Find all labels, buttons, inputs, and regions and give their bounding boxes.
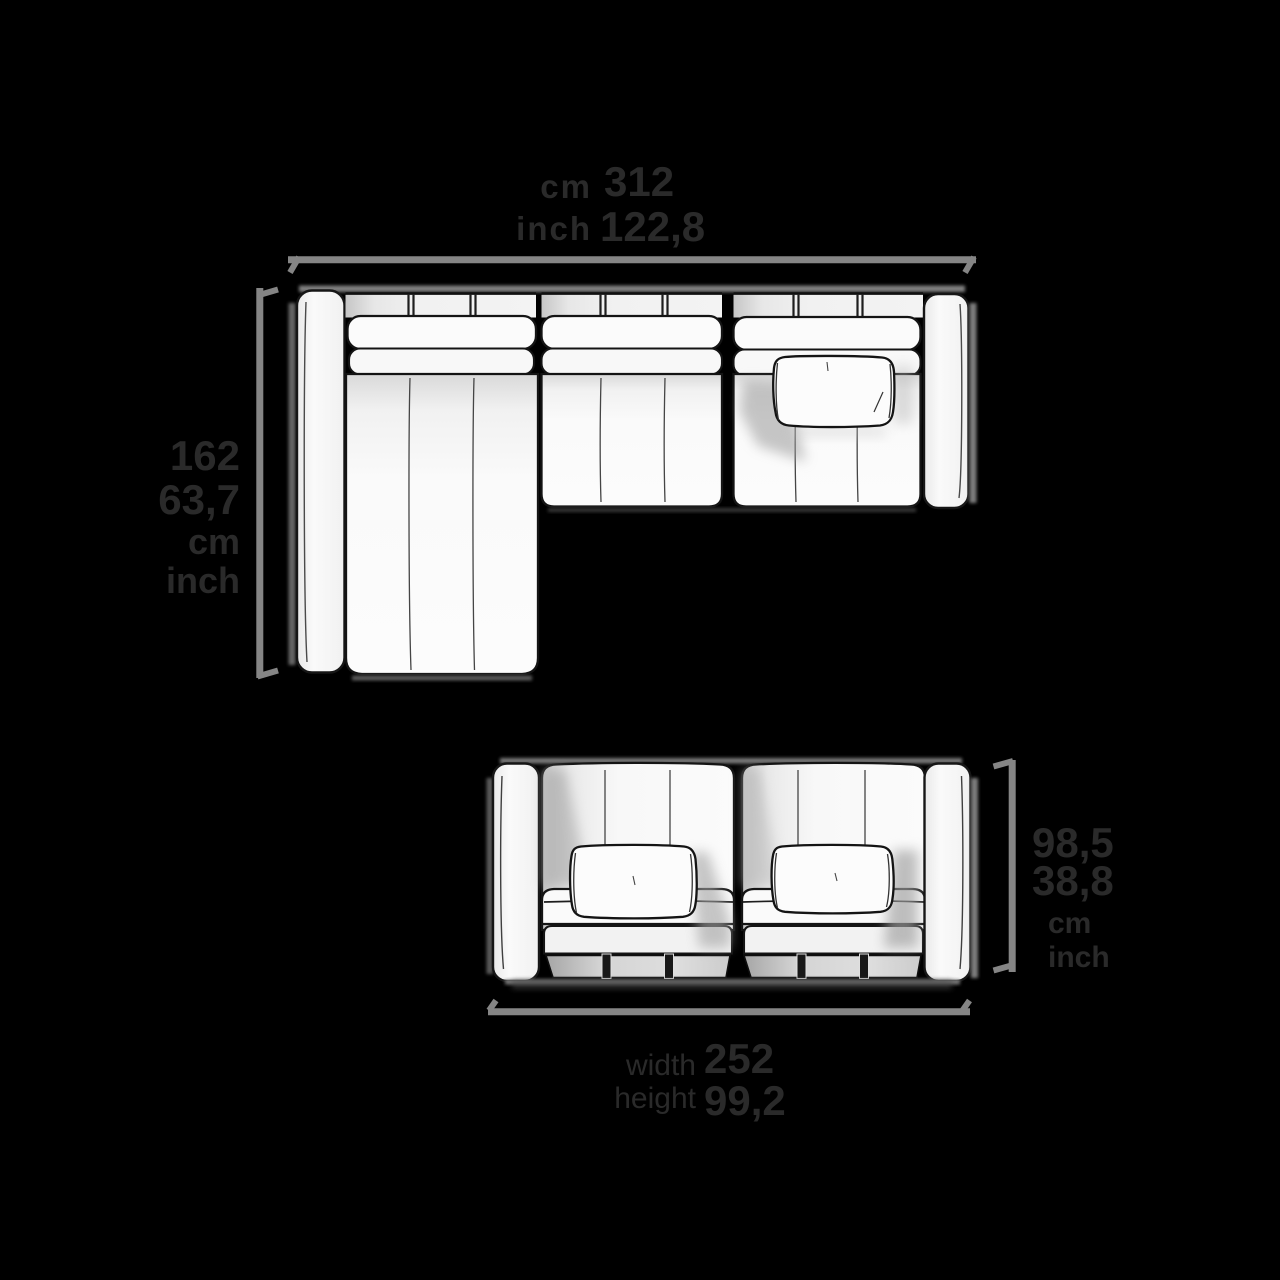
svg-text:inch: inch: [1048, 941, 1110, 974]
svg-text:63,7: 63,7: [158, 476, 240, 523]
svg-text:cm: cm: [540, 168, 592, 205]
svg-text:height: height: [614, 1082, 696, 1115]
svg-text:99,2: 99,2: [704, 1077, 786, 1124]
svg-text:312: 312: [604, 158, 674, 205]
svg-text:38,8: 38,8: [1032, 857, 1114, 904]
svg-text:cm: cm: [188, 521, 240, 562]
svg-text:inch: inch: [166, 560, 240, 601]
svg-text:162: 162: [170, 432, 240, 479]
svg-text:width: width: [625, 1049, 696, 1082]
svg-text:252: 252: [704, 1035, 774, 1082]
svg-text:cm: cm: [1048, 907, 1091, 940]
svg-text:122,8: 122,8: [600, 203, 705, 250]
svg-text:inch: inch: [516, 210, 592, 247]
